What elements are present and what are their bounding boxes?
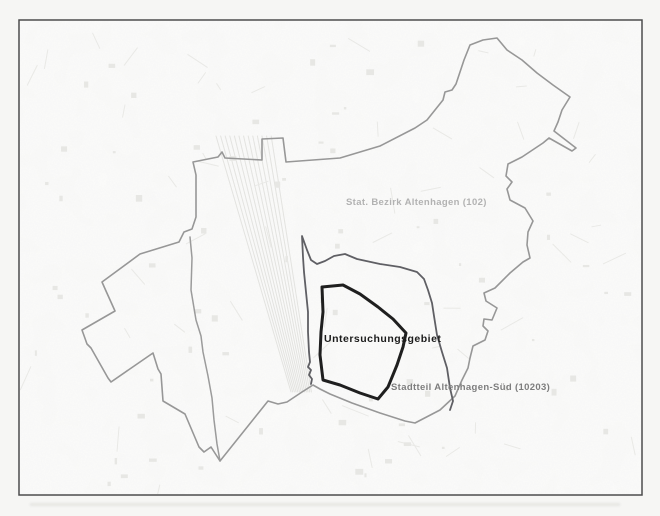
map-page: Stat. Bezirk Altenhagen (102) Untersuchu… bbox=[0, 0, 660, 516]
label-untersuchungsgebiet: Untersuchungsgebiet bbox=[324, 333, 441, 345]
label-stat-bezirk-altenhagen: Stat. Bezirk Altenhagen (102) bbox=[346, 197, 487, 208]
label-stadtteil-altenhagen-sued: Stadtteil Altenhagen-Süd (10203) bbox=[391, 382, 550, 393]
map-svg bbox=[0, 0, 660, 516]
scan-streak bbox=[30, 503, 620, 506]
map-texture bbox=[20, 21, 641, 512]
